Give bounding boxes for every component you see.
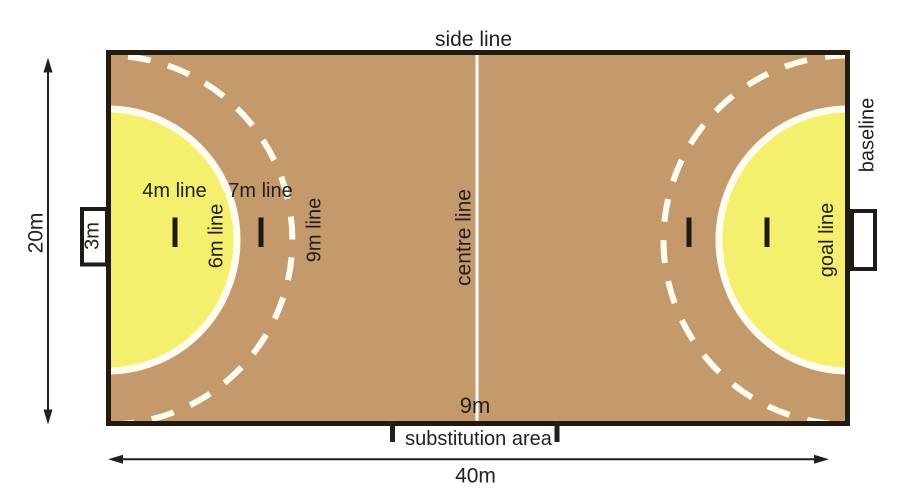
svg-text:baseline: baseline [857,98,879,173]
svg-text:goal line: goal line [816,203,838,278]
svg-text:6m line: 6m line [206,204,228,268]
svg-text:7m line: 7m line [228,180,292,202]
svg-text:substitution area: substitution area [405,428,553,450]
svg-text:centre line: centre line [453,189,476,286]
svg-text:4m line: 4m line [142,180,206,202]
svg-text:40m: 40m [455,465,496,488]
svg-text:3m: 3m [82,222,104,250]
svg-text:9m: 9m [460,393,491,418]
svg-text:side line: side line [435,28,512,51]
svg-text:9m line: 9m line [304,198,326,262]
svg-text:20m: 20m [25,213,48,254]
